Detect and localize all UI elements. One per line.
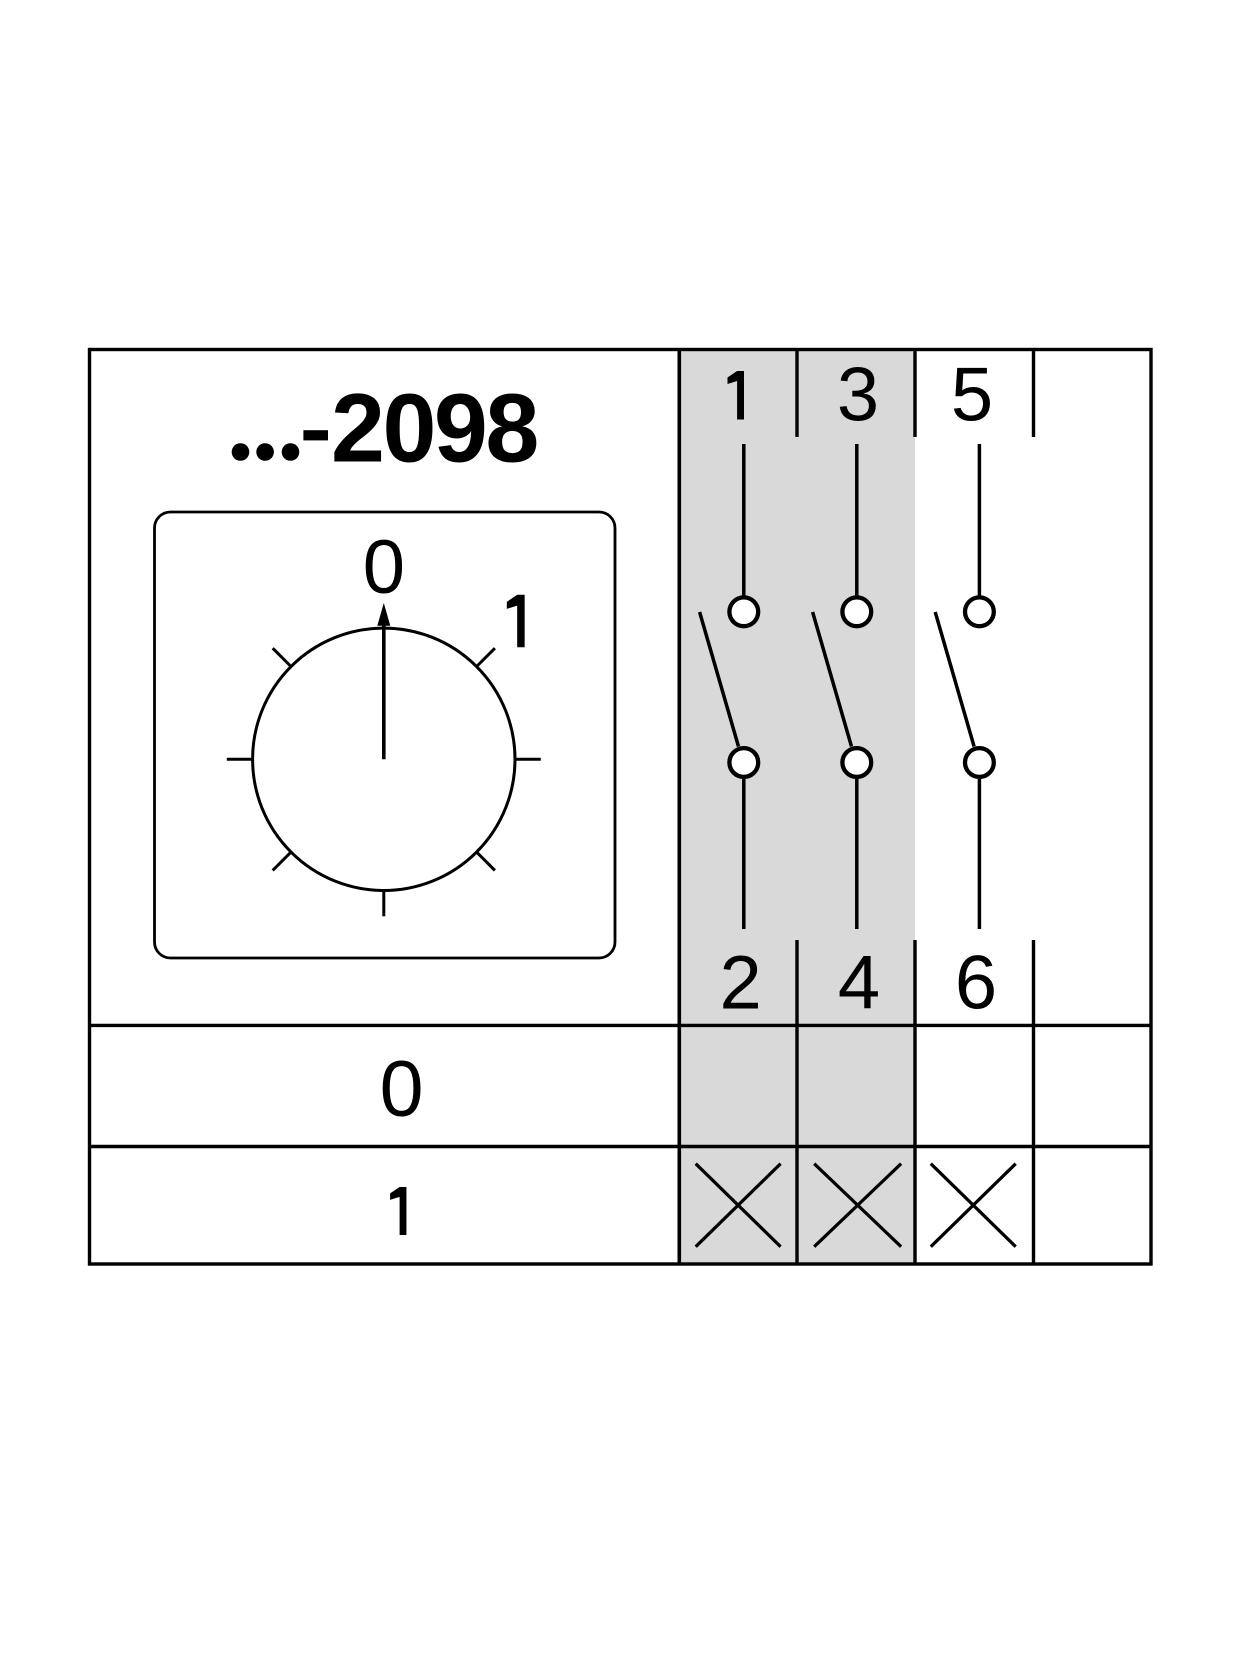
svg-text:2098: 2098	[331, 373, 537, 482]
svg-text:0: 0	[380, 1044, 424, 1133]
svg-text:2: 2	[719, 941, 761, 1026]
svg-text:6: 6	[955, 941, 997, 1026]
svg-text:0: 0	[363, 525, 405, 610]
svg-text:5: 5	[951, 353, 993, 438]
svg-text:4: 4	[838, 941, 880, 1026]
svg-text:3: 3	[837, 353, 879, 438]
